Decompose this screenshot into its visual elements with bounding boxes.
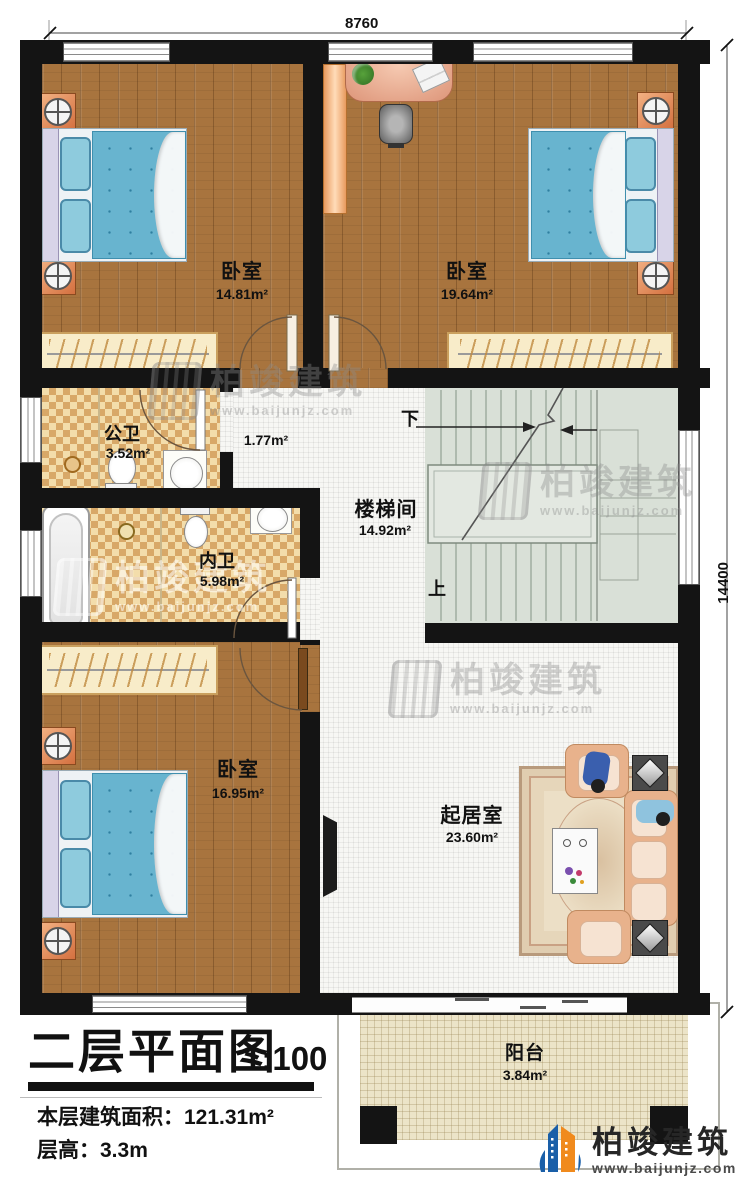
room-label-public-bath: 公卫 — [104, 425, 140, 443]
room-label-inner-bath: 内卫 — [199, 552, 235, 570]
room-label-bedroom1: 卧室 — [221, 262, 263, 282]
door-arc-bedroom1 — [240, 317, 292, 369]
stair-landing — [428, 465, 597, 543]
sliding-door-panel — [562, 1000, 588, 1003]
room-area-living: 23.60m² — [446, 830, 498, 844]
room-area-balcony: 3.84m² — [503, 1068, 547, 1082]
room-label-bedroom2: 卧室 — [446, 262, 488, 282]
floor-plan-canvas: 柏竣建筑www.baijunjz.com 柏竣建筑www.baijunjz.co… — [0, 0, 750, 1192]
door-arc-bedroom3 — [240, 648, 302, 710]
door-arc-bedroom2 — [334, 317, 386, 369]
room-area-inner-bath: 5.98m² — [200, 574, 244, 588]
floor-area-text: 本层建筑面积：121.31m² — [37, 1107, 274, 1128]
sliding-door-panel — [520, 1006, 546, 1009]
title-divider — [20, 1097, 322, 1098]
title-underline — [28, 1082, 314, 1091]
door-arc-public-bath — [140, 390, 200, 450]
room-area-hall: 1.77m² — [244, 433, 288, 447]
stair-arrow — [560, 425, 573, 435]
stair-arrow — [523, 422, 536, 432]
stair-treads-lower — [441, 543, 591, 621]
floor-height-text: 层高：3.3m — [37, 1140, 148, 1161]
brand-name: 柏竣建筑 — [592, 1127, 732, 1158]
drawing-title: 二层平面图 — [28, 1028, 278, 1075]
dimension-top-value: 8760 — [345, 16, 378, 31]
dimension-right-value: 14400 — [716, 562, 731, 604]
stair-down-label: 下 — [401, 410, 419, 428]
stair-up-label: 上 — [428, 580, 446, 598]
brand-logo-icon — [535, 1120, 585, 1178]
plan-linework — [0, 0, 750, 1192]
room-label-living: 起居室 — [441, 806, 504, 826]
room-label-bedroom3: 卧室 — [217, 760, 259, 780]
room-area-stairwell: 14.92m² — [359, 523, 411, 537]
room-area-public-bath: 3.52m² — [106, 446, 150, 460]
brand-website: www.baijunjz.com — [592, 1161, 737, 1175]
drawing-scale: 1:100 — [243, 1042, 327, 1075]
sliding-door-panel — [455, 998, 489, 1001]
room-label-balcony: 阳台 — [505, 1044, 545, 1063]
room-label-stairwell: 楼梯间 — [355, 500, 418, 520]
room-area-bedroom3: 16.95m² — [212, 786, 264, 800]
room-area-bedroom2: 19.64m² — [441, 287, 493, 301]
room-area-bedroom1: 14.81m² — [216, 287, 268, 301]
